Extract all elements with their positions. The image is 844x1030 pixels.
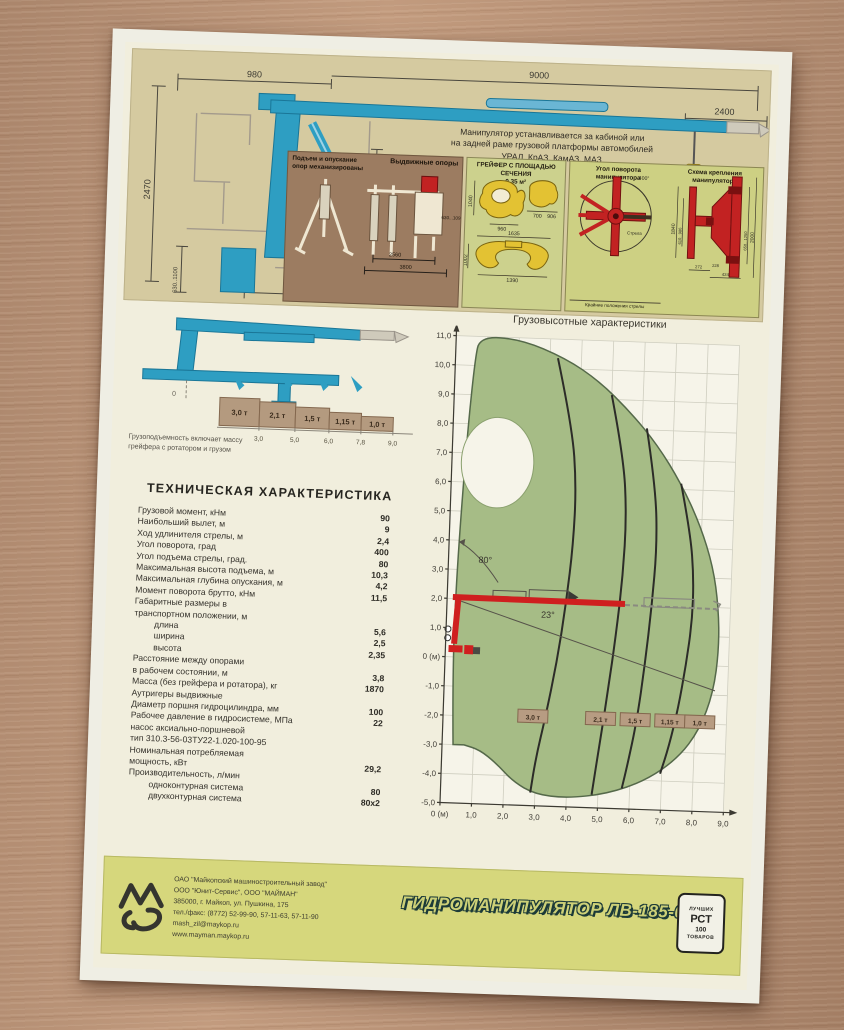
y-tick-label: 2,0: [431, 594, 443, 603]
spec-value: 80х2: [332, 797, 380, 810]
dim-1840: 1840: [670, 223, 676, 235]
grab-drawing: 1040 960 700 906 1635 1002 1390: [463, 158, 565, 286]
stamp-number: 100: [695, 926, 706, 933]
stamp-top-text: ЛУЧШИХ: [689, 906, 714, 913]
dim-2470: 2470: [142, 179, 153, 199]
capacity-boxes: 3,0 т2,1 т1,5 т1,15 т1,0 т: [219, 397, 394, 431]
dim-1002: 1002: [463, 254, 469, 266]
x-tick-label: 7,0: [654, 817, 666, 826]
dim-700: 700: [533, 213, 542, 219]
capacity-box-label: 2,1 т: [269, 411, 286, 421]
company-info: ОАО "Майкопский машиностроительный завод…: [172, 874, 392, 948]
load-zone-label: 2,1 т: [593, 717, 608, 725]
x-tick-label: 6,0: [623, 816, 635, 825]
footer-band: ОАО "Майкопский машиностроительный завод…: [101, 856, 744, 976]
boom-down-angle-label: 23°: [541, 610, 555, 620]
y-tick-label: 10,0: [435, 360, 451, 370]
capacity-reach-tick: 6,0: [324, 438, 334, 445]
dim-272: 272: [694, 264, 702, 269]
y-tick-label: 9,0: [438, 389, 450, 398]
y-tick-label: -1,0: [425, 681, 440, 690]
load-zone-label: 1,15 т: [661, 719, 680, 727]
boom-arm-label: Стрела: [627, 230, 642, 236]
load-zone-label: 3,0 т: [526, 714, 541, 722]
dim-424: 424: [721, 272, 729, 277]
capacity-strip: 3,0 т2,1 т1,5 т1,15 т1,0 т 3,05,06,07,89…: [216, 367, 417, 452]
dim-630-1100: 630..1100: [172, 266, 179, 293]
stamp-rst-text: РСТ: [690, 913, 712, 926]
factory-logo-icon: [112, 876, 170, 936]
x-tick-label: 0 (м): [431, 809, 449, 819]
panel-supports: Подъем и опускание опор механизированы В…: [282, 151, 463, 308]
feature-panels: Подъем и опускание опор механизированы В…: [282, 151, 764, 319]
capacity-box-label: 1,5 т: [304, 414, 321, 424]
rotation-drawing: 400° Стрела: [567, 161, 667, 273]
dim-2560: 2560: [389, 252, 401, 258]
panel-rotation: Угол поворотаманипулятора: [565, 161, 667, 313]
dim-1040: 1040: [468, 195, 474, 207]
capacity-box-label: 1,0 т: [369, 420, 386, 430]
dim-228: 228: [712, 263, 720, 268]
x-tick-label: 4,0: [560, 814, 572, 823]
chart-canvas: 80°23° 3,0 т2,1 т1,5 т1,15 т1,0 т 11,010…: [399, 324, 762, 842]
capacity-reach-tick: 5,0: [290, 437, 300, 444]
y-tick-label: -5,0: [421, 798, 436, 807]
panel-mounting: Схема крепленияманипулятора: [662, 165, 764, 317]
y-tick-label: 7,0: [436, 448, 448, 457]
x-tick-label: 3,0: [528, 813, 540, 822]
product-title: ГИДРОМАНИПУЛЯТОР ЛВ-185-08: [401, 893, 695, 923]
dim-650-1250: 650...1250: [742, 231, 748, 251]
x-tick-label: 5,0: [591, 815, 603, 824]
y-tick-label: 1,0: [430, 623, 442, 632]
dim-610-986: 610...986: [677, 227, 683, 245]
load-height-chart: Грузовысотные характеристики 80°23° 3,0 …: [399, 310, 763, 847]
capacity-box-label: 1,15 т: [335, 417, 356, 427]
mounting-drawing: 1840 610...986 650...1250 2000 228 272 4…: [663, 165, 764, 286]
y-tick-label: 3,0: [432, 564, 444, 573]
side-view-drawing-section: 980 9000 2400 2470 2000 630..1100 790: [123, 48, 771, 322]
y-tick-label: -2,0: [424, 710, 439, 719]
y-tick-label: 6,0: [435, 477, 447, 486]
panel-olive-pair: Угол поворотаманипулятора: [564, 160, 764, 318]
y-tick-label: 4,0: [433, 535, 445, 544]
load-zone-label: 1,0 т: [692, 720, 707, 728]
load-zone-label: 1,5 т: [628, 718, 643, 726]
zero-mark: 0: [172, 391, 176, 398]
x-tick-label: 1,0: [465, 810, 477, 819]
y-tick-label: 11,0: [436, 331, 452, 341]
y-tick-label: -3,0: [423, 739, 438, 748]
y-tick-label: 0 (м): [422, 652, 440, 662]
stamp-bottom-text: ТОВАРОВ: [687, 934, 715, 941]
dim-3800: 3800: [399, 265, 411, 271]
capacity-reach-tick: 7,8: [356, 439, 366, 446]
x-tick-label: 8,0: [686, 818, 698, 827]
dim-960: 960: [497, 226, 506, 232]
outriggers-drawing: 2560 3800 630...1090: [284, 152, 462, 286]
technical-specs: ТЕХНИЧЕСКАЯ ХАРАКТЕРИСТИКА Грузовой моме…: [108, 480, 415, 811]
y-tick-label: -4,0: [422, 769, 437, 778]
capacity-reach-tick: 3,0: [254, 436, 264, 443]
panel-grab: ГРЕЙФЕР С ПЛОЩАДЬЮ СЕЧЕНИЯ0,35 м² 1040 9…: [461, 157, 566, 311]
boom-up-angle-label: 80°: [478, 555, 492, 565]
specs-title: ТЕХНИЧЕСКАЯ ХАРАКТЕРИСТИКА: [125, 480, 415, 504]
middle-section: 0 3,0 т2,1 т1,5 т1,15 т1,0 т 3,05,06,07,…: [104, 300, 763, 870]
y-tick-label: 8,0: [437, 419, 449, 428]
rotation-angle-label: 400°: [639, 176, 650, 182]
capacity-reach-tick: 9,0: [388, 440, 398, 447]
capacity-box-label: 3,0 т: [231, 408, 248, 418]
dim-2000: 2000: [749, 232, 755, 244]
dim-9000: 9000: [529, 70, 549, 81]
dim-1390: 1390: [506, 278, 518, 284]
dim-1635: 1635: [508, 231, 520, 237]
x-tick-label: 2,0: [497, 812, 509, 821]
capacity-caption: Грузоподъемность включает массу грейфера…: [128, 432, 243, 456]
dim-630-1090: 630...1090: [441, 215, 462, 221]
rotation-caption: Крайние положения стрелы: [569, 300, 660, 310]
spec-rows: Грузовой момент, кНм90Наибольший вылет, …: [114, 504, 414, 811]
brochure-content: 980 9000 2400 2470 2000 630..1100 790: [93, 42, 779, 990]
left-column: 0 3,0 т2,1 т1,5 т1,15 т1,0 т 3,05,06,07,…: [108, 306, 421, 811]
x-tick-label: 9,0: [717, 819, 729, 828]
dim-2400: 2400: [714, 106, 734, 117]
dim-980: 980: [247, 69, 262, 80]
brochure-page: 980 9000 2400 2470 2000 630..1100 790: [80, 28, 793, 1003]
dim-906: 906: [547, 214, 556, 220]
quality-stamp: ЛУЧШИХ РСТ 100 ТОВАРОВ: [676, 893, 726, 955]
capacity-arrows: [232, 372, 363, 395]
y-tick-label: 5,0: [434, 506, 446, 515]
transport-position-diagram: 0 3,0 т2,1 т1,5 т1,15 т1,0 т 3,05,06,07,…: [120, 306, 421, 468]
